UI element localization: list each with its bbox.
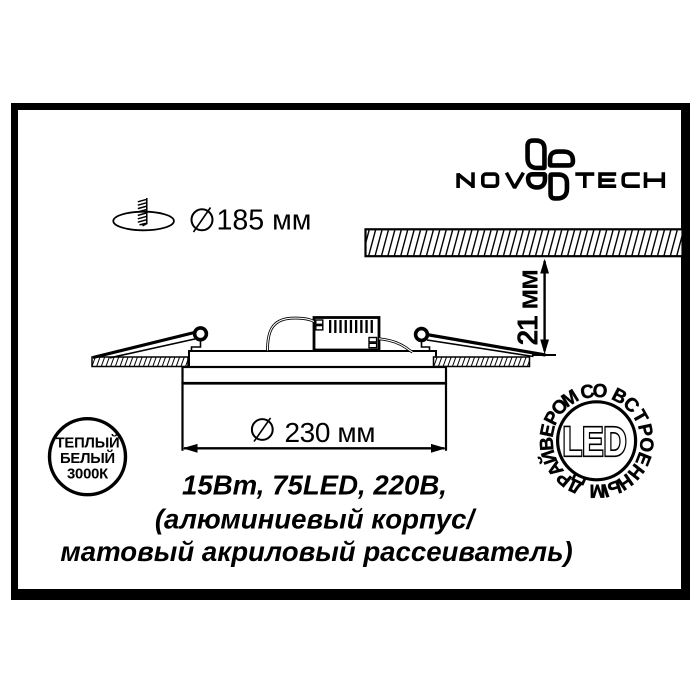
- svg-text:21 мм: 21 мм: [513, 270, 545, 346]
- svg-text:230 мм: 230 мм: [285, 417, 376, 448]
- svg-text:матовый акриловый рассеиватель: матовый акриловый рассеиватель): [60, 536, 572, 567]
- svg-text:15Вт, 75LED, 220В,: 15Вт, 75LED, 220В,: [182, 470, 447, 501]
- svg-text:185 мм: 185 мм: [217, 205, 312, 237]
- svg-text:О: О: [592, 381, 608, 403]
- svg-text:3000К: 3000К: [67, 467, 109, 483]
- svg-text:М: М: [589, 479, 605, 500]
- svg-text:(алюминиевый корпус/: (алюминиевый корпус/: [155, 504, 478, 535]
- svg-text:БЕЛЫЙ: БЕЛЫЙ: [60, 449, 115, 467]
- svg-text:LED: LED: [563, 419, 627, 465]
- svg-text:ТЕПЛЫЙ: ТЕПЛЫЙ: [56, 434, 120, 452]
